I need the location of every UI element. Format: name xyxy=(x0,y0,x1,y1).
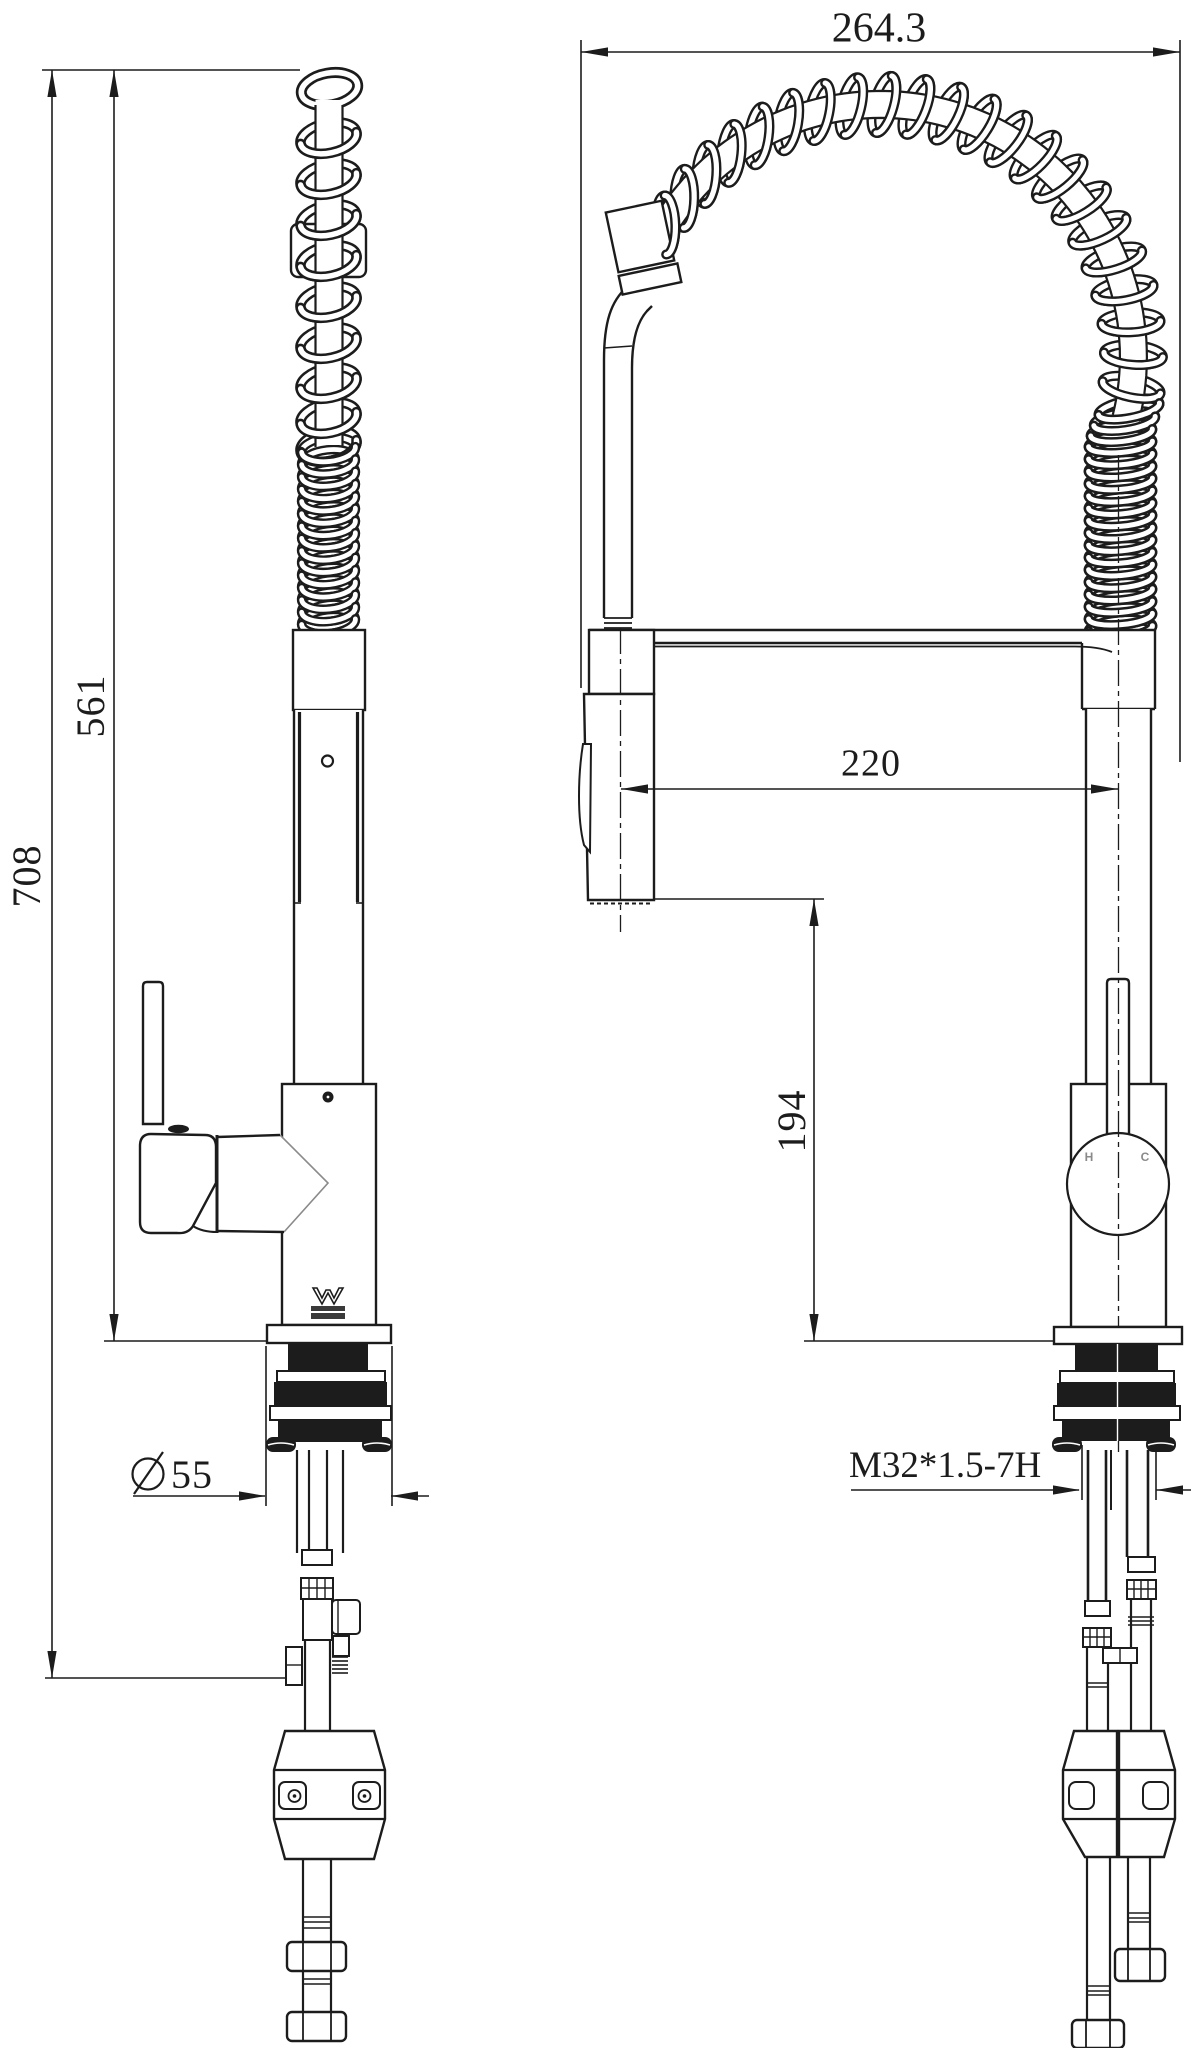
svg-text:H: H xyxy=(1085,1150,1094,1164)
svg-text:561: 561 xyxy=(68,675,113,738)
svg-text:220: 220 xyxy=(841,743,901,785)
svg-text:55: 55 xyxy=(171,1452,213,1497)
svg-text:M32*1.5-7H: M32*1.5-7H xyxy=(849,1445,1041,1486)
svg-text:C: C xyxy=(1141,1150,1150,1164)
svg-text:264.3: 264.3 xyxy=(832,6,927,52)
svg-text:708: 708 xyxy=(4,845,49,908)
svg-text:194: 194 xyxy=(769,1090,814,1153)
